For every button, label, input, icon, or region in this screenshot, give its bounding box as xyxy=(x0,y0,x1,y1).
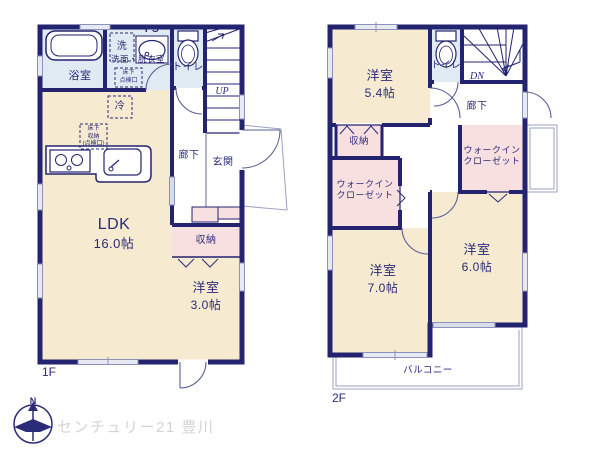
room-size-bedroom54: 5.4帖 xyxy=(365,86,396,100)
room-label-balcony: バルコニー xyxy=(403,365,453,376)
room-size-ldk: 16.0帖 xyxy=(94,236,135,251)
label-washer: 洗 xyxy=(117,41,128,53)
label-underfloor-access: 床下 点検口 xyxy=(119,70,137,85)
room-label-bedroom60: 洋室 xyxy=(463,242,490,257)
floor2-plan xyxy=(328,22,558,389)
room-size-bedroom60: 6.0帖 xyxy=(462,260,493,274)
room-label-bedroom70: 洋室 xyxy=(369,263,396,278)
room-size-bedroom3: 3.0帖 xyxy=(191,298,222,312)
room-label-bedroom3: 洋室 xyxy=(192,280,219,295)
floorplan-drawing xyxy=(0,0,600,450)
toilet-icon-1f xyxy=(178,31,198,66)
room-label-toilet-2f: トイレ xyxy=(431,60,461,71)
label-pipe-space: PS xyxy=(145,24,159,36)
room-label-entrance: 玄関 xyxy=(213,157,234,169)
room-size-bedroom70: 7.0帖 xyxy=(368,281,399,295)
room-label-ldk: LDK xyxy=(98,216,131,235)
room-label-hallway-1f: 廊下 xyxy=(179,150,200,162)
floor2-label: 2F xyxy=(332,391,346,405)
label-stairs-down: DN xyxy=(470,71,484,83)
floor1-label: 1F xyxy=(42,365,56,379)
room-label-storage-1f: 収納 xyxy=(196,235,217,247)
compass-icon xyxy=(14,402,52,443)
kitchen-sink-icon xyxy=(104,149,141,175)
room-label-bedroom54: 洋室 xyxy=(366,68,393,83)
compass-north-label: N xyxy=(30,396,37,406)
label-stairs-up: UP xyxy=(215,86,228,98)
label-fridge: 冷 xyxy=(115,101,126,113)
room-label-wic-right: ウォークイン クローゼット xyxy=(463,145,520,166)
room-label-bath: 浴室 xyxy=(69,70,92,83)
bathtub-icon xyxy=(46,31,102,60)
room-label-toilet-1f: トイレ xyxy=(172,62,204,74)
room-label-storage-2f: 収納 xyxy=(349,136,369,147)
label-underfloor-storage: 床下 収納 (点検口) xyxy=(83,126,105,149)
floorplan-canvas: 浴室 洗面・脱衣室 洗 PS 床下 点検口 トイレ UP 冷 床下 収納 (点検… xyxy=(0,0,600,450)
watermark-text: センチュリー21 豊川 xyxy=(57,416,214,437)
kitchen-stove-icon xyxy=(50,150,90,172)
room-label-washroom: 洗面・脱衣室 xyxy=(111,54,165,64)
room-label-hallway-2f: 廊下 xyxy=(467,101,488,113)
room-label-wic-left: ウォークイン クローゼット xyxy=(336,179,393,200)
porch-roof-outline xyxy=(527,125,557,192)
